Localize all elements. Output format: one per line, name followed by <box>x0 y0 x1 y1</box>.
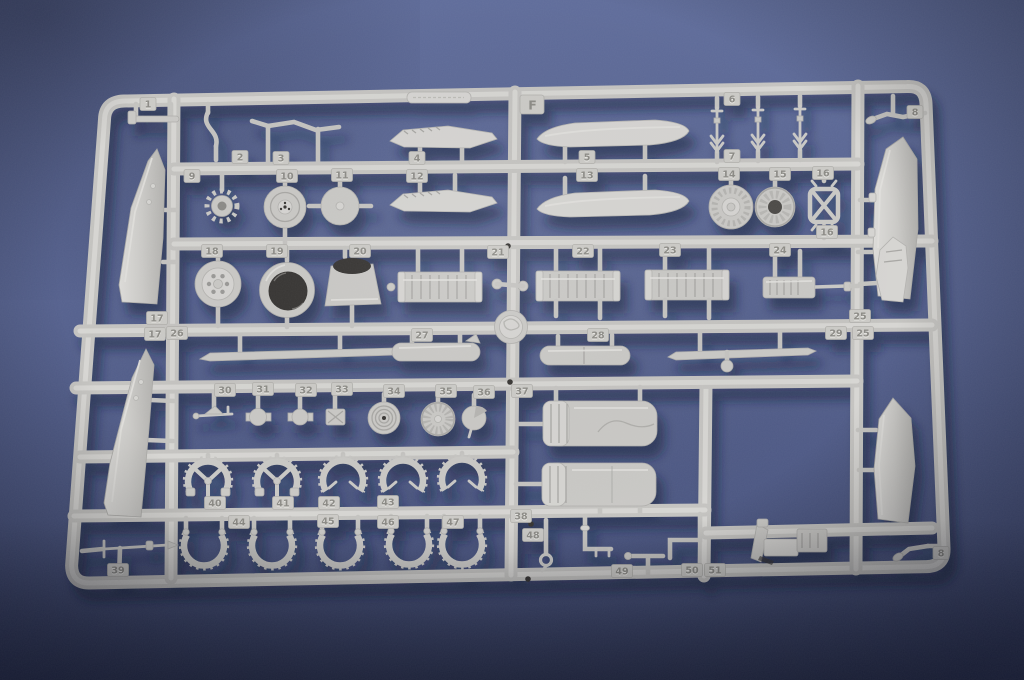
model-kit-sprue-photo: F 11223344556677888899101011111212131314… <box>0 0 1024 680</box>
film-grain-overlay <box>0 0 1024 680</box>
